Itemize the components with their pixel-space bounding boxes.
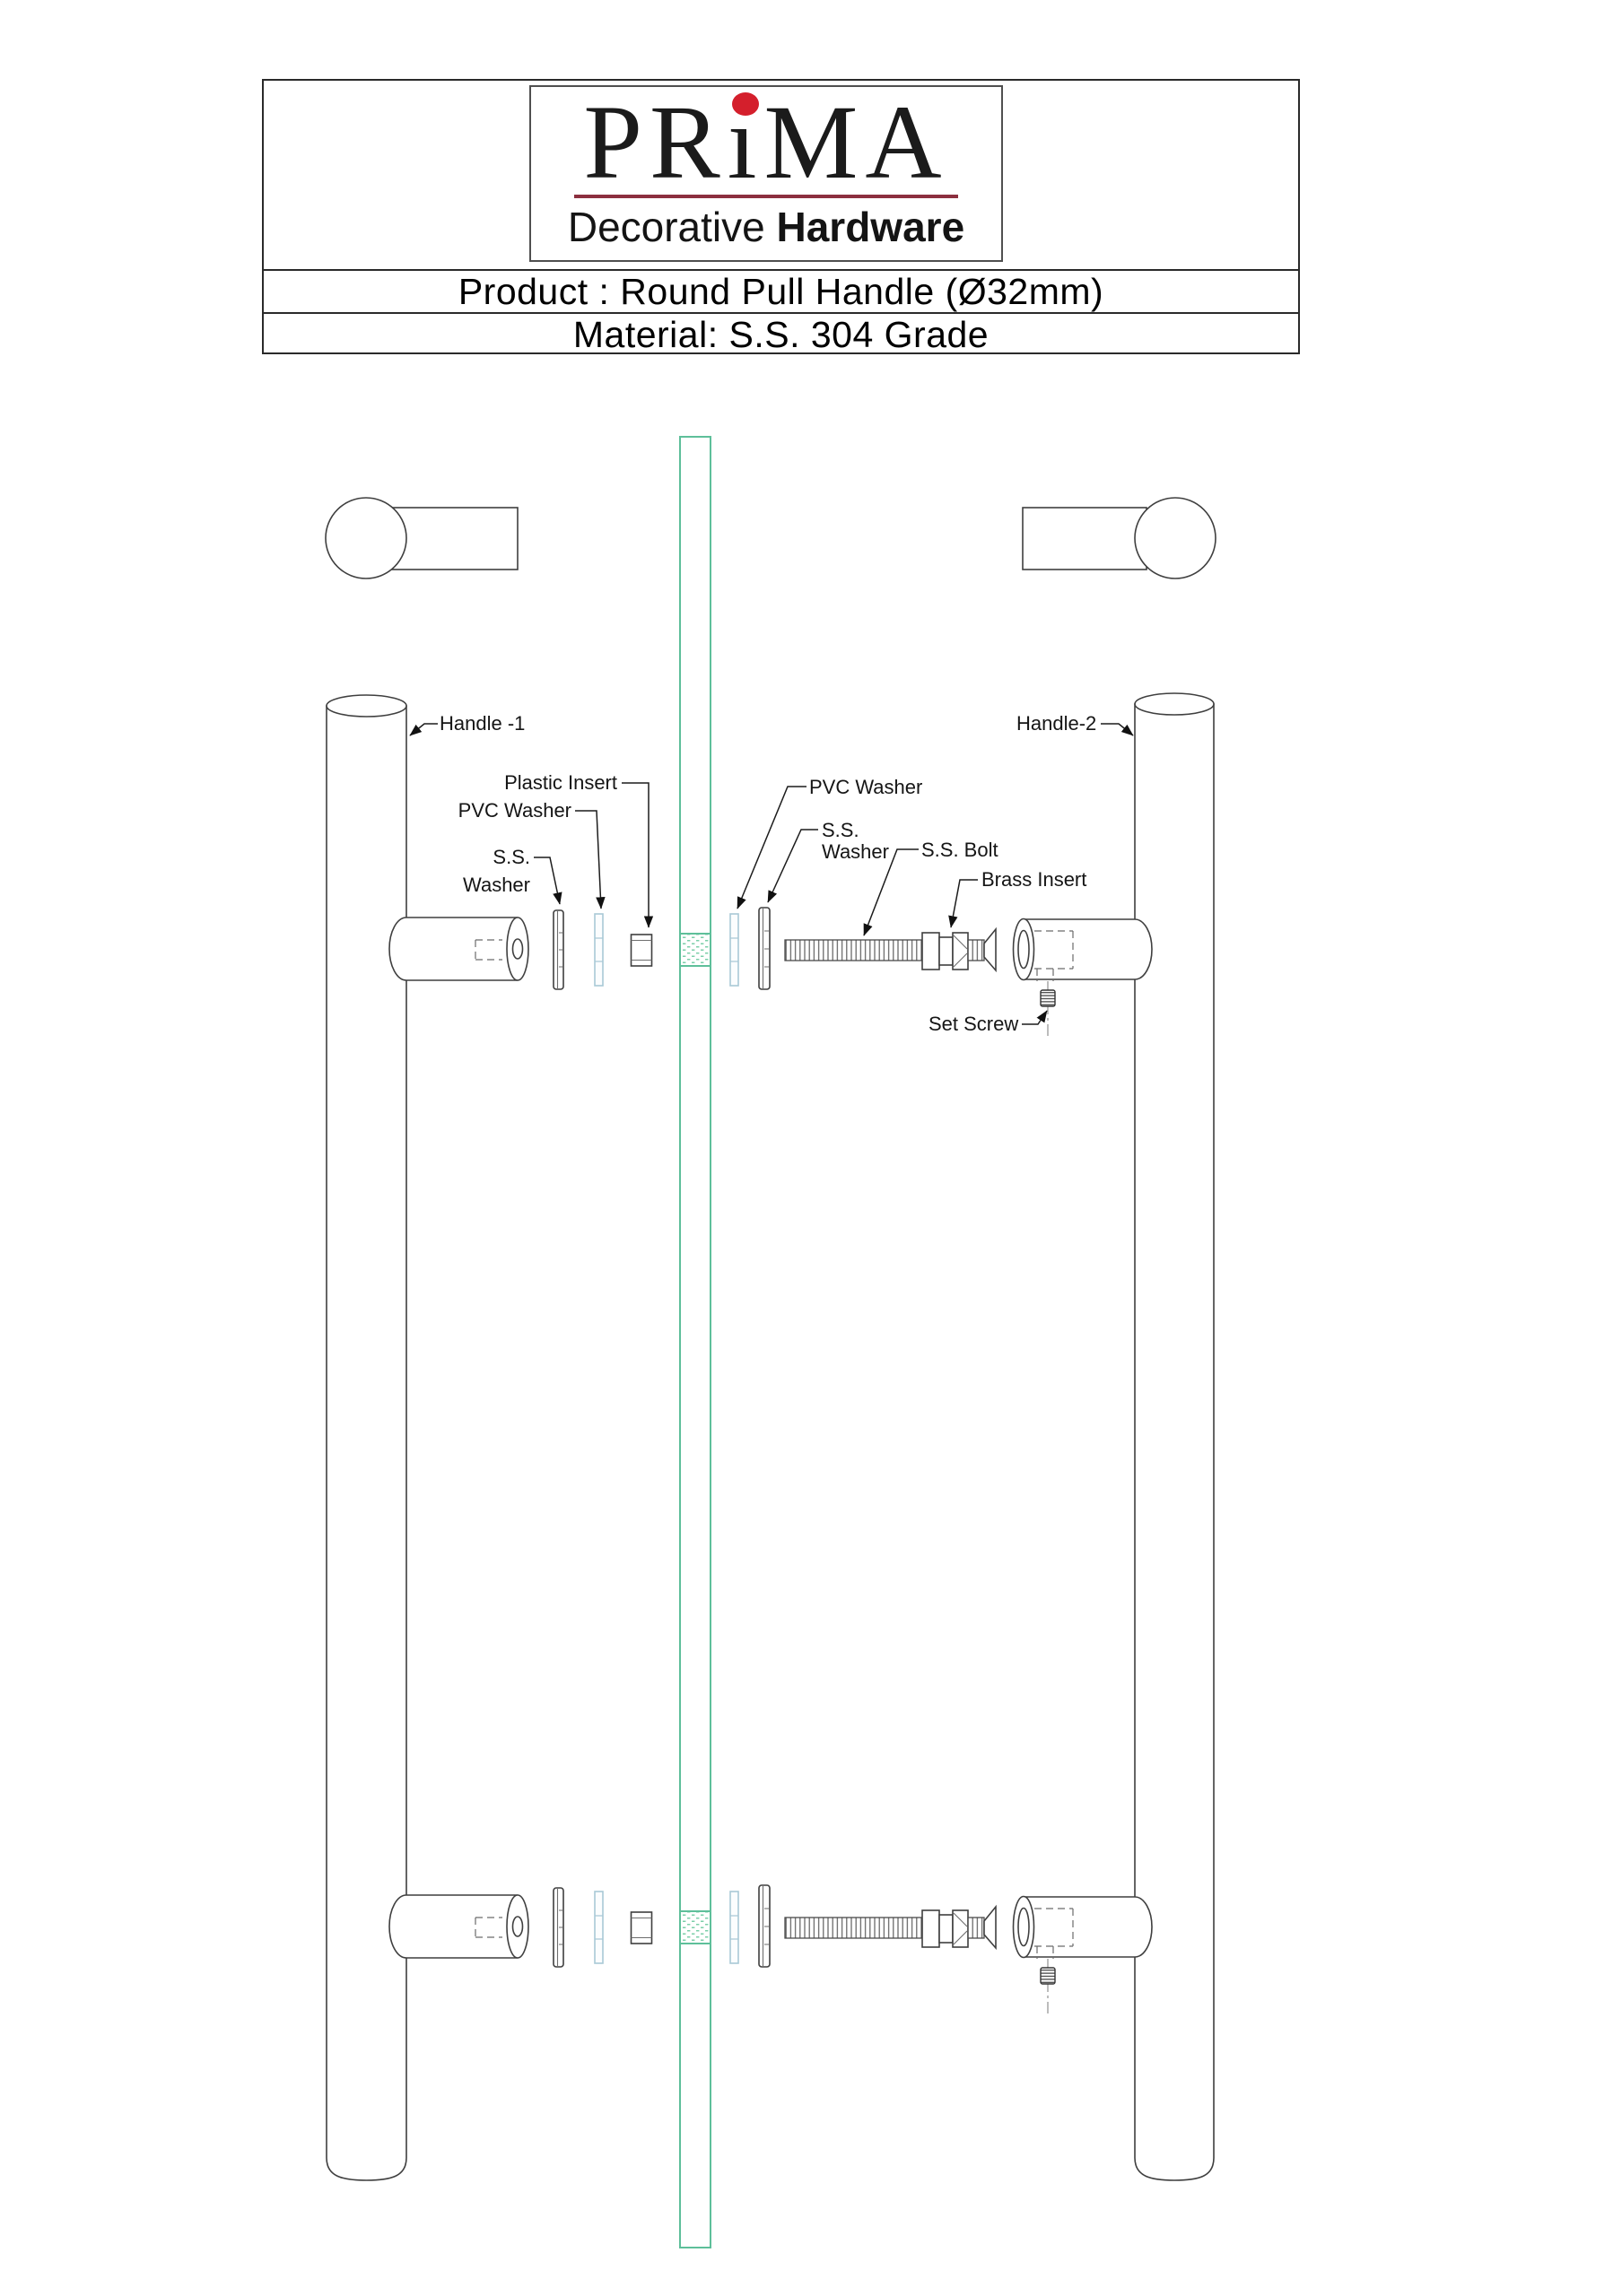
leader-handle1 <box>410 724 438 735</box>
handle2-top-end <box>1135 693 1214 715</box>
leader-set-screw <box>1022 1011 1047 1024</box>
leader-ss-washer-right <box>768 830 818 902</box>
leader-plastic-insert <box>622 783 649 927</box>
glass-panel <box>680 437 711 2248</box>
leader-ss-washer-left <box>534 857 560 904</box>
plan-left-handle-circle <box>326 498 406 578</box>
label-brass-insert: Brass Insert <box>981 868 1086 891</box>
leader-brass-insert <box>951 880 978 927</box>
bolt-thread <box>785 940 922 961</box>
handle1-tube <box>327 695 406 2180</box>
glass-hole <box>680 934 711 966</box>
ss-bolt <box>785 929 996 970</box>
plan-right-standoff <box>1023 508 1147 570</box>
label-set-screw: Set Screw <box>929 1013 1018 1035</box>
plan-right-handle-circle <box>1135 498 1216 578</box>
leader-handle2 <box>1101 724 1133 735</box>
label-ss-washer-left-line2: Washer <box>463 874 530 896</box>
right-standoff <box>1014 919 1153 982</box>
label-ss-washer-left-line1: S.S. <box>493 846 530 868</box>
exploded-assembly-upper <box>389 908 1152 1039</box>
handle2-plan-view <box>1023 498 1216 578</box>
ss-washer-left <box>554 910 563 989</box>
plastic-insert <box>632 935 652 966</box>
label-handle2: Handle-2 <box>1016 712 1096 735</box>
pvc-washer-left <box>595 914 603 986</box>
ss-washer-right <box>759 908 770 989</box>
exploded-assembly-lower <box>389 1885 1152 2016</box>
set-screw <box>1041 981 1055 1039</box>
label-pvc-washer-right: PVC Washer <box>809 776 922 798</box>
plan-left-standoff <box>388 508 518 570</box>
brass-insert <box>922 933 968 970</box>
drawing-sheet: PRıMA Decorative Hardware Product : Roun… <box>0 0 1613 2296</box>
bolt-head <box>984 929 996 970</box>
leader-pvc-washer-left <box>575 811 601 909</box>
label-handle1: Handle -1 <box>440 712 525 735</box>
handle1-top-end <box>327 695 406 717</box>
label-ss-washer-right-line1: S.S. <box>822 819 859 841</box>
pvc-washer-right <box>730 914 738 986</box>
label-ss-bolt: S.S. Bolt <box>921 839 998 861</box>
handle1-plan-view <box>326 498 518 578</box>
right-standoff-hole <box>1018 931 1029 969</box>
handle2-tube <box>1135 693 1214 2180</box>
leader-pvc-washer-right <box>737 787 806 909</box>
assembly-drawing: Handle -1 Handle-2 Plastic Insert PVC Wa… <box>0 0 1613 2296</box>
left-standoff-hole <box>513 939 523 959</box>
label-plastic-insert: Plastic Insert <box>504 771 617 794</box>
label-pvc-washer-left: PVC Washer <box>458 799 571 822</box>
label-ss-washer-right-line2: Washer <box>822 840 889 863</box>
left-standoff <box>389 918 528 980</box>
